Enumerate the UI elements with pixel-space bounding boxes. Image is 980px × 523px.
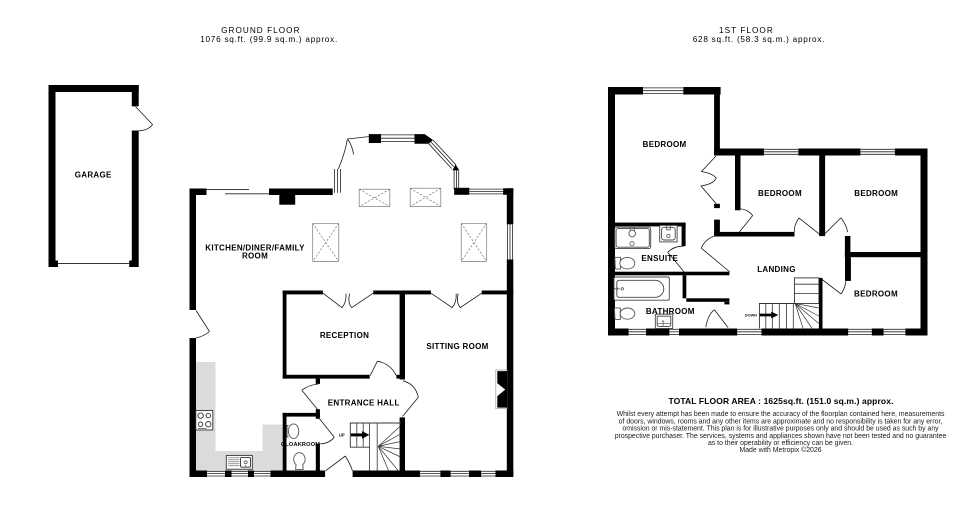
svg-text:BEDROOM: BEDROOM: [854, 189, 898, 198]
svg-text:BEDROOM: BEDROOM: [758, 189, 802, 198]
svg-text:BEDROOM: BEDROOM: [643, 140, 687, 149]
svg-text:as to their operability or eff: as to their operability or efficiency ca…: [708, 440, 853, 447]
svg-text:SITTING ROOM: SITTING ROOM: [426, 342, 488, 351]
svg-text:LANDING: LANDING: [757, 265, 796, 274]
svg-text:GARAGE: GARAGE: [75, 170, 112, 179]
svg-text:1076 sq.ft. (99.9 sq.m.) appro: 1076 sq.ft. (99.9 sq.m.) approx.: [200, 35, 338, 44]
svg-text:BEDROOM: BEDROOM: [854, 289, 898, 298]
svg-text:BATHROOM: BATHROOM: [646, 307, 695, 316]
svg-text:RECEPTION: RECEPTION: [320, 331, 369, 340]
svg-text:Whilst every attempt has been: Whilst every attempt has been made to en…: [617, 411, 945, 418]
svg-text:of doors, windows, rooms and a: of doors, windows, rooms and any other i…: [619, 418, 943, 425]
svg-text:prospective purchaser. The ser: prospective purchaser. The services, sys…: [615, 433, 947, 440]
svg-text:1ST FLOOR: 1ST FLOOR: [719, 26, 774, 35]
svg-text:UP: UP: [339, 432, 345, 437]
svg-text:TOTAL FLOOR AREA : 1625sq.ft.: TOTAL FLOOR AREA : 1625sq.ft. (151.0 sq.…: [668, 396, 893, 406]
svg-text:omission or mis-statement. Thi: omission or mis-statement. This plan is …: [622, 426, 939, 433]
svg-text:DOWN: DOWN: [745, 313, 757, 317]
svg-text:ROOM: ROOM: [242, 251, 268, 260]
svg-text:CLOAKROOM: CLOAKROOM: [281, 442, 320, 448]
svg-text:GROUND FLOOR: GROUND FLOOR: [221, 26, 300, 35]
svg-text:628 sq.ft. (58.3 sq.m.) approx: 628 sq.ft. (58.3 sq.m.) approx.: [693, 35, 825, 44]
svg-text:ENSUITE: ENSUITE: [641, 254, 678, 263]
svg-text:Made with Metropix ©2026: Made with Metropix ©2026: [739, 446, 821, 454]
svg-text:ENTRANCE HALL: ENTRANCE HALL: [328, 398, 400, 407]
